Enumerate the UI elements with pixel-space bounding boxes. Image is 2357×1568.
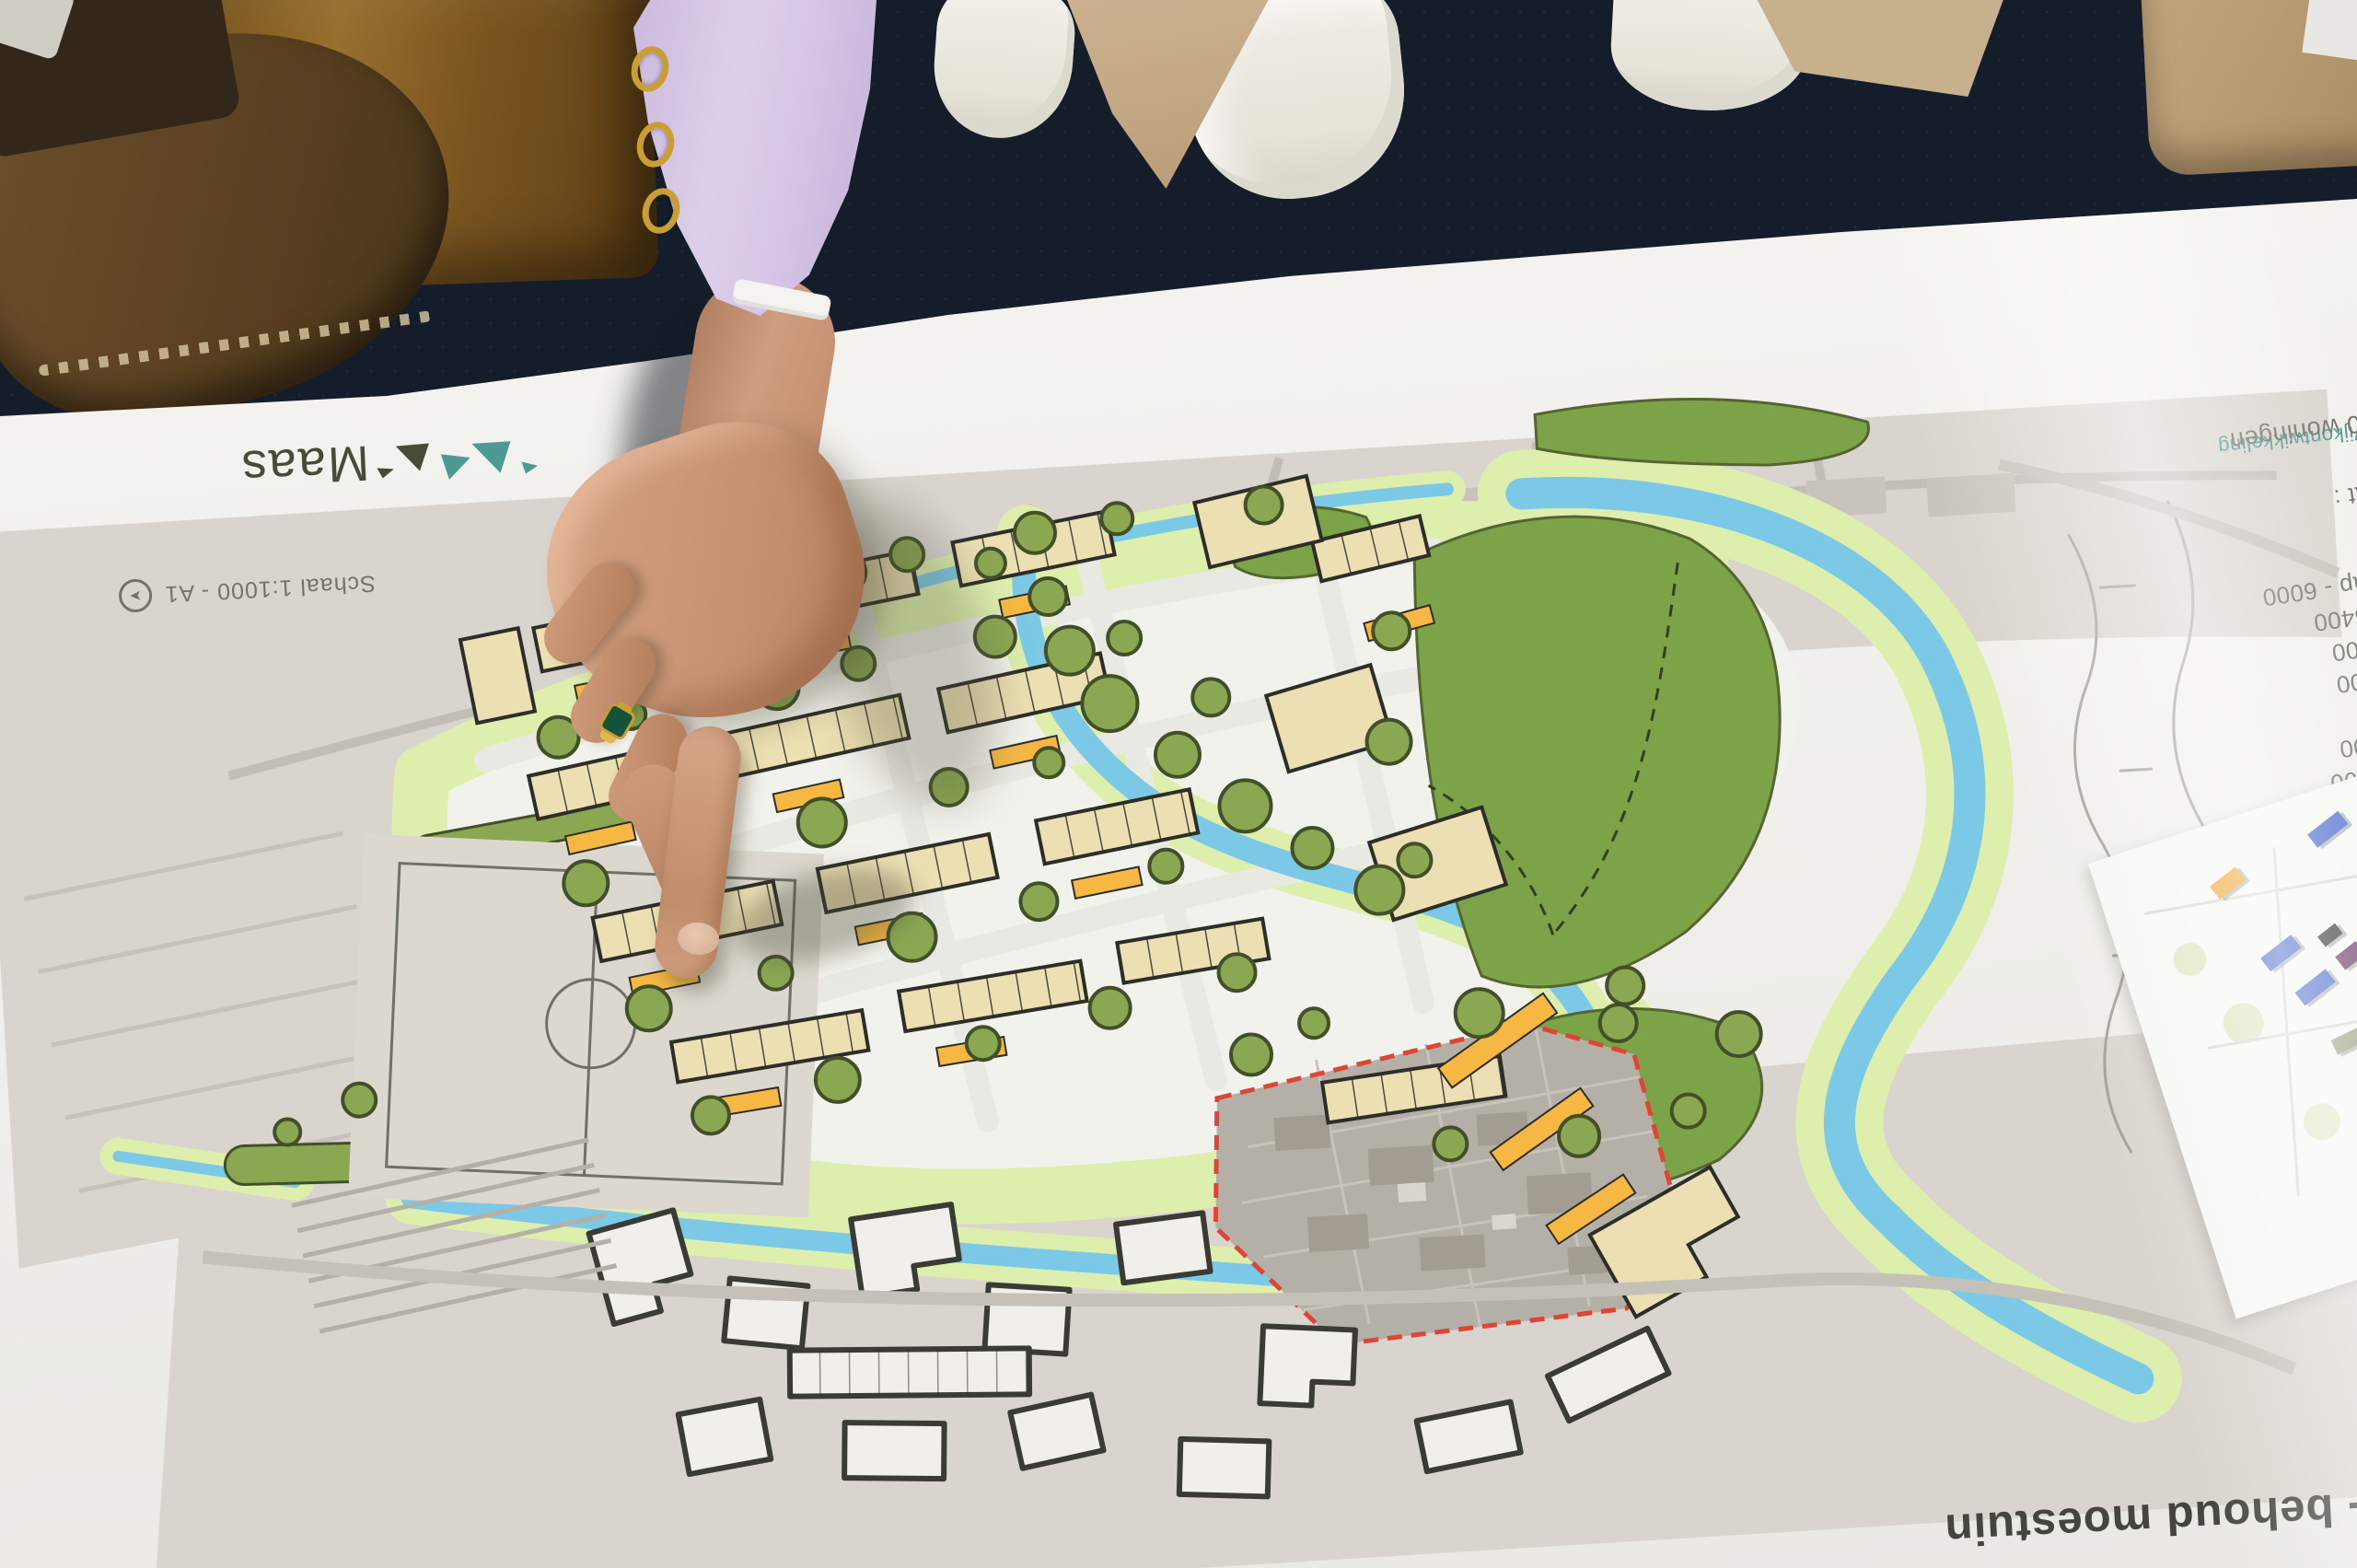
logo-triangle-icon xyxy=(518,459,539,477)
logo-triangle-icon xyxy=(436,452,470,483)
inset-block-olive xyxy=(2331,1005,2357,1055)
inset-tree xyxy=(2299,1098,2345,1144)
logo-triangle-icon xyxy=(396,439,435,475)
maas-logo: Maas xyxy=(221,412,538,514)
logo-triangle-icon xyxy=(471,438,515,477)
inset-block-black xyxy=(2317,923,2343,947)
logo-triangle-icon xyxy=(375,465,394,481)
inset-block-blue xyxy=(2307,811,2348,848)
inset-street xyxy=(2272,847,2300,1196)
logo-wordmark: Maas xyxy=(239,435,371,497)
north-arrow-icon: ➤ xyxy=(118,578,153,613)
inset-tree xyxy=(2169,938,2211,980)
inset-block-blue xyxy=(2295,969,2336,1005)
photo-scene: Maas Wijkontwikkeling Schaal 1:1000 - A1… xyxy=(0,0,2357,1568)
inset-block-purple xyxy=(2335,941,2357,970)
inset-street xyxy=(2144,865,2357,915)
